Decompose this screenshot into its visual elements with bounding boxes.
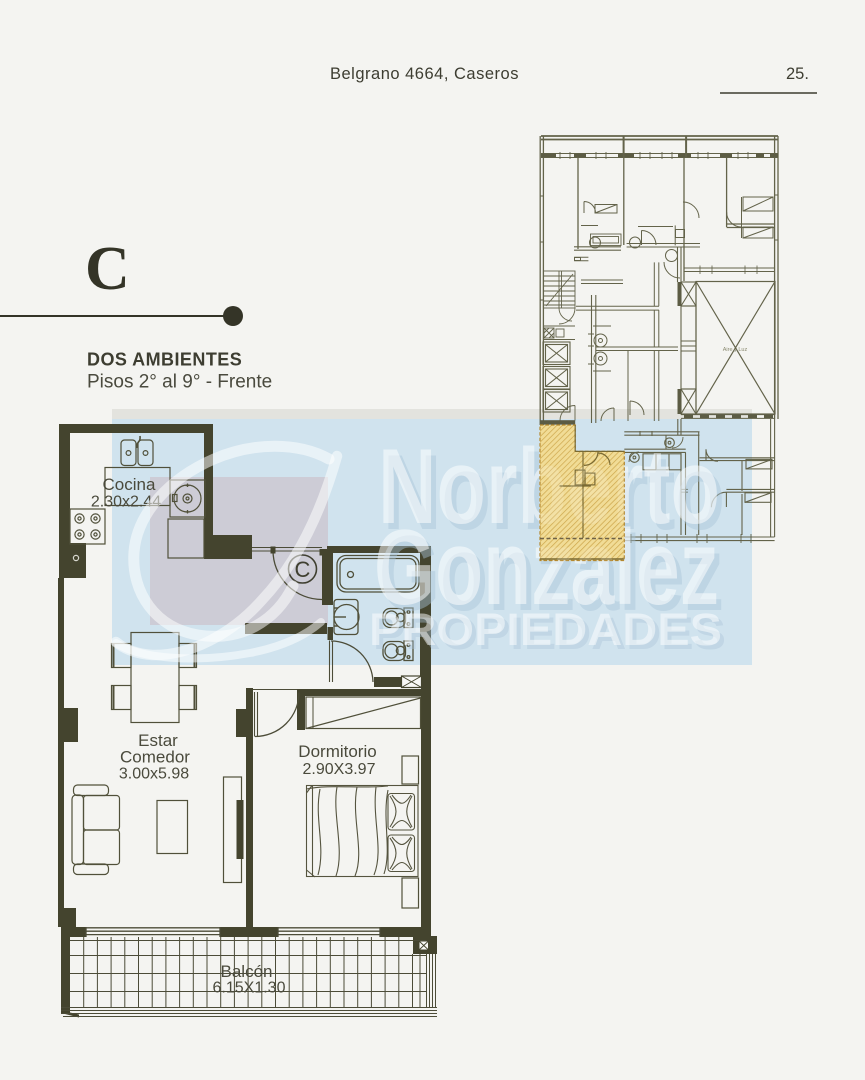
svg-text:Comedor: Comedor	[120, 748, 190, 767]
svg-text:Cocina: Cocina	[103, 475, 156, 494]
svg-text:DOS AMBIENTES: DOS AMBIENTES	[87, 350, 242, 370]
svg-text:PROPIEDADES: PROPIEDADES	[369, 604, 722, 655]
svg-text:Dormitorio: Dormitorio	[298, 742, 376, 761]
svg-text:2.90X3.97: 2.90X3.97	[303, 761, 376, 778]
svg-text:Balcón: Balcón	[221, 962, 273, 981]
svg-text:25.: 25.	[786, 65, 809, 83]
svg-text:Belgrano 4664, Caseros: Belgrano 4664, Caseros	[330, 65, 519, 83]
svg-text:Aire y Luz: Aire y Luz	[723, 347, 748, 353]
svg-text:Pisos 2° al 9° - Frente: Pisos 2° al 9° - Frente	[87, 372, 272, 393]
svg-text:6.15X1.30: 6.15X1.30	[213, 980, 286, 997]
svg-text:3.00x5.98: 3.00x5.98	[119, 766, 189, 783]
svg-text:C: C	[85, 235, 130, 303]
